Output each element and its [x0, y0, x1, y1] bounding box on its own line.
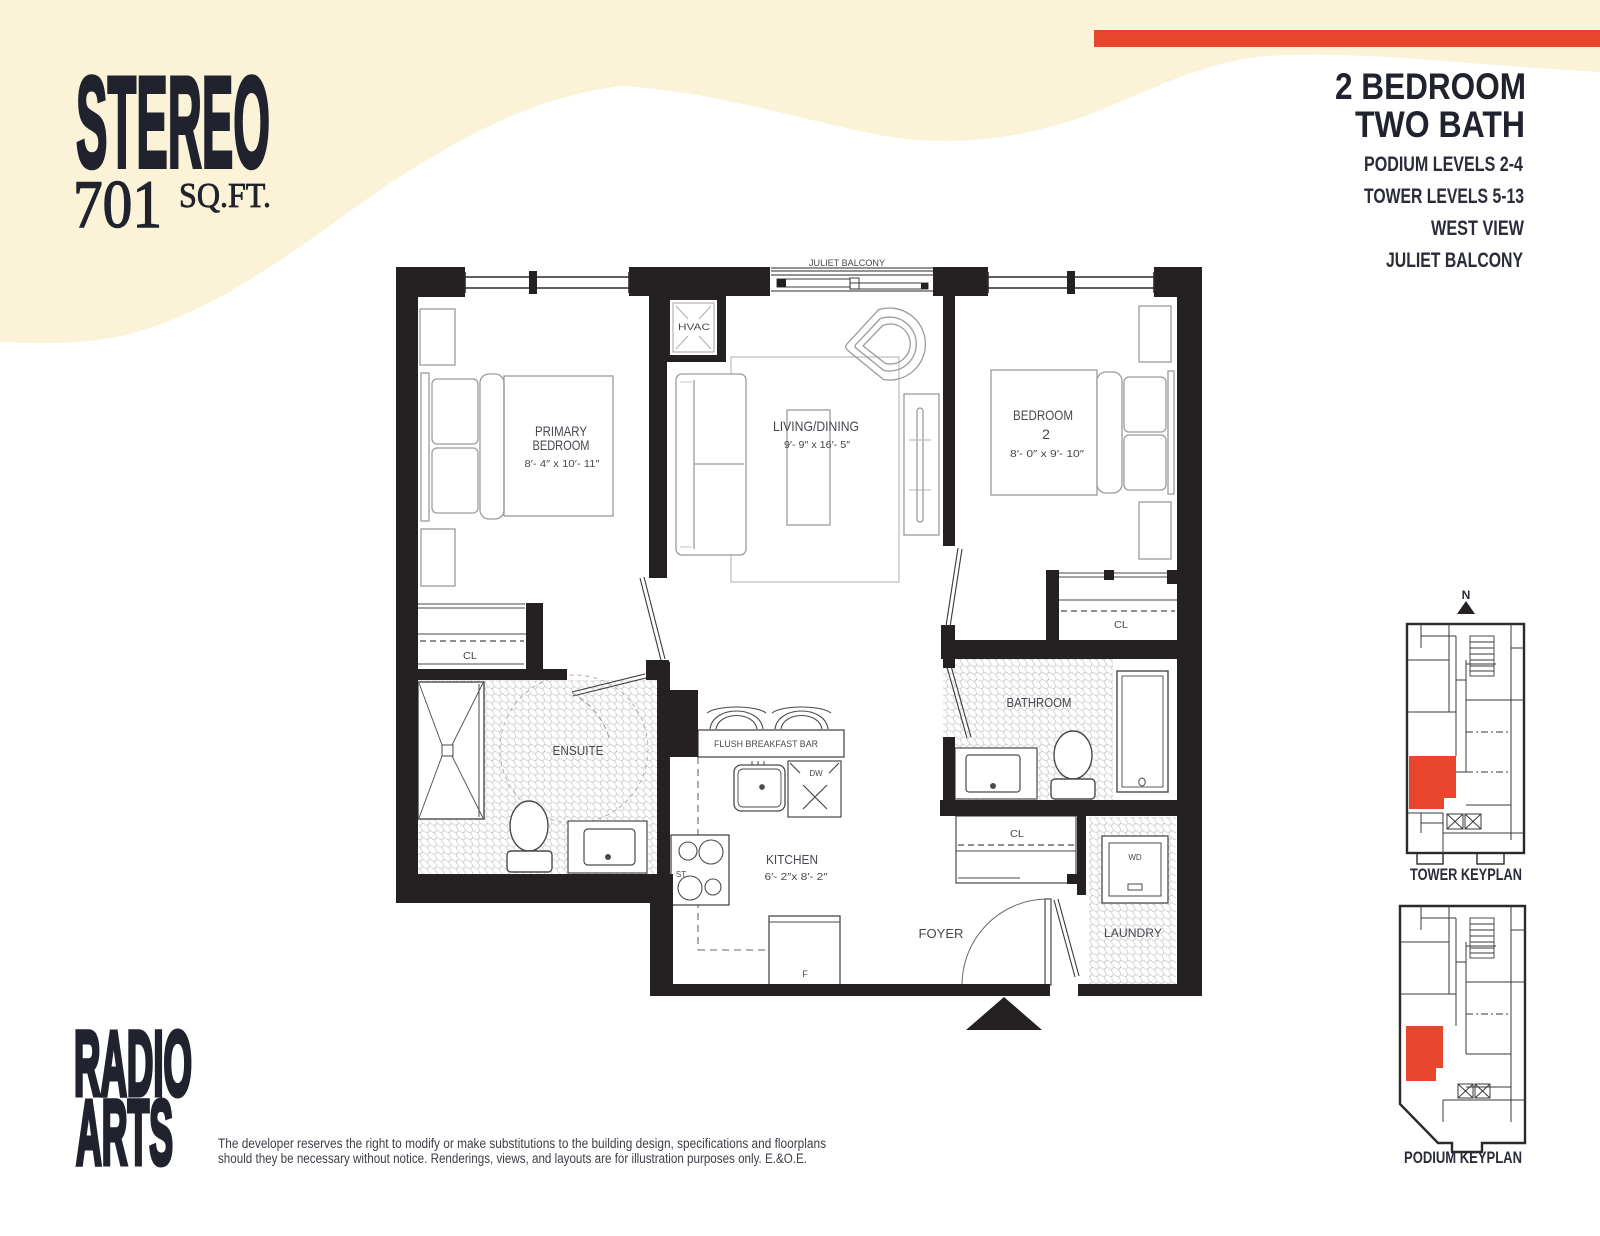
svg-text:LIVING/DINING: LIVING/DINING	[773, 418, 859, 434]
svg-text:KITCHEN: KITCHEN	[766, 852, 818, 867]
svg-text:BEDROOM: BEDROOM	[533, 437, 590, 453]
svg-text:should they be necessary witho: should they be necessary without notice.…	[218, 1151, 807, 1166]
svg-text:WD: WD	[1128, 853, 1142, 862]
svg-text:TWO BATH: TWO BATH	[1355, 103, 1525, 145]
svg-text:F: F	[802, 969, 808, 979]
svg-text:JULIET BALCONY: JULIET BALCONY	[1386, 249, 1523, 272]
svg-text:8′- 0″ x 9′- 10″: 8′- 0″ x 9′- 10″	[1010, 448, 1084, 460]
svg-text:8′- 4″ x 10′- 11″: 8′- 4″ x 10′- 11″	[525, 458, 600, 470]
svg-text:701: 701	[73, 166, 162, 242]
svg-text:JULIET BALCONY: JULIET BALCONY	[809, 258, 885, 268]
svg-text:WEST VIEW: WEST VIEW	[1431, 217, 1524, 240]
svg-text:The developer reserves the rig: The developer reserves the right to modi…	[218, 1136, 826, 1151]
svg-text:ST: ST	[676, 870, 686, 879]
svg-text:DW: DW	[809, 769, 823, 778]
svg-text:HVAC: HVAC	[678, 322, 711, 332]
svg-text:FLUSH BREAKFAST BAR: FLUSH BREAKFAST BAR	[714, 739, 818, 749]
svg-text:2 BEDROOM: 2 BEDROOM	[1335, 65, 1526, 107]
svg-text:9′- 9″ x 16′- 5″: 9′- 9″ x 16′- 5″	[784, 439, 850, 451]
svg-text:CL: CL	[1114, 620, 1128, 631]
svg-text:SQ.FT.: SQ.FT.	[179, 176, 271, 215]
svg-text:N: N	[1462, 588, 1471, 602]
svg-text:ENSUITE: ENSUITE	[553, 743, 604, 758]
svg-text:TOWER KEYPLAN: TOWER KEYPLAN	[1410, 865, 1522, 884]
svg-text:FOYER: FOYER	[919, 926, 964, 941]
svg-text:CL: CL	[463, 651, 477, 662]
svg-text:PODIUM LEVELS 2-4: PODIUM LEVELS 2-4	[1364, 153, 1523, 176]
svg-text:PODIUM KEYPLAN: PODIUM KEYPLAN	[1404, 1148, 1522, 1167]
svg-text:TOWER LEVELS 5-13: TOWER LEVELS 5-13	[1364, 185, 1524, 208]
svg-text:2: 2	[1042, 426, 1050, 442]
svg-text:LAUNDRY: LAUNDRY	[1104, 926, 1162, 940]
svg-text:CL: CL	[1010, 829, 1024, 840]
svg-text:ARTS: ARTS	[76, 1082, 173, 1184]
svg-text:BEDROOM: BEDROOM	[1013, 407, 1073, 423]
svg-text:BATHROOM: BATHROOM	[1007, 695, 1072, 710]
svg-text:6′- 2″x 8′- 2″: 6′- 2″x 8′- 2″	[765, 871, 828, 883]
